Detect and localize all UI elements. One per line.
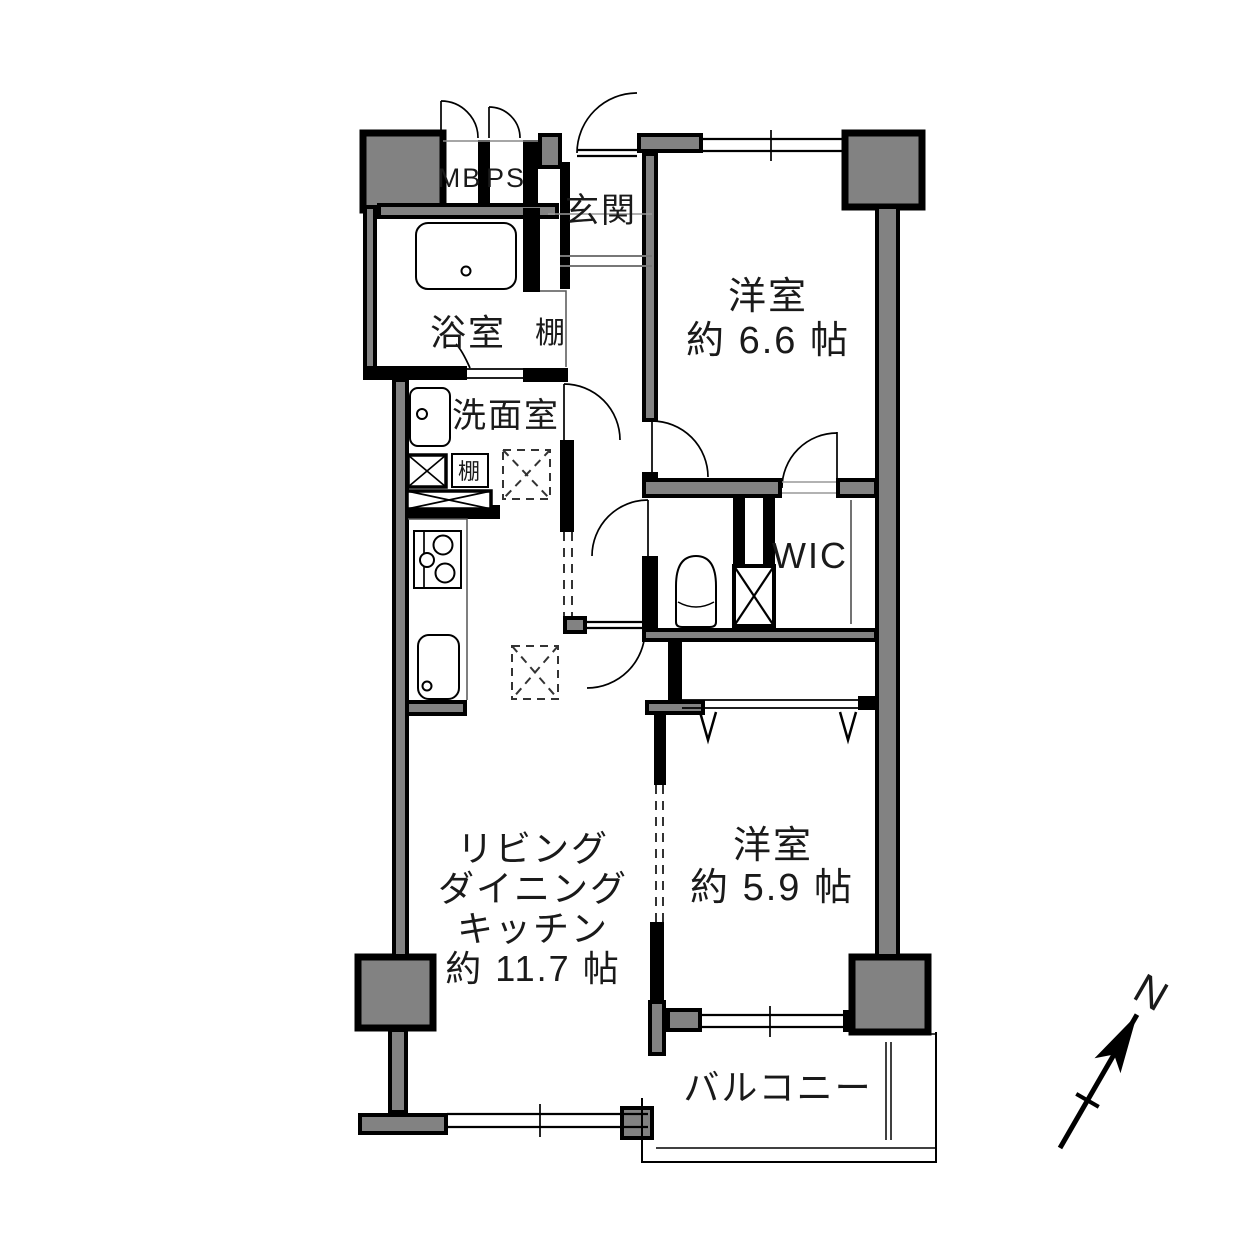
- window-bedroom2-south: [700, 1006, 843, 1037]
- counter-hatch: [407, 491, 491, 509]
- partition-ldk-bedroom2-dashed: [656, 785, 663, 922]
- pillar: [845, 133, 922, 207]
- wall-segment: [858, 696, 878, 710]
- pillar: [363, 133, 443, 210]
- label-ldk-line2: ダイニング: [438, 868, 628, 909]
- pipe-shaft-box: [734, 566, 774, 626]
- wall-segment: [843, 1010, 855, 1032]
- label-bedroom2-size: 約 5.9 帖: [690, 867, 854, 909]
- bedroom1-door: [652, 421, 708, 477]
- entrance-door: [577, 93, 637, 156]
- dashed-space-kitchen: [512, 646, 558, 699]
- wall-core: [396, 382, 405, 954]
- ps-door: [489, 107, 520, 138]
- bathtub: [416, 223, 516, 289]
- window-bedroom1-top: [700, 130, 845, 161]
- label-ldk-size: 約 11.7 帖: [445, 948, 620, 989]
- closet-sliding-doors: [682, 700, 858, 740]
- wall-core: [567, 620, 583, 630]
- wall-core: [652, 1004, 662, 1052]
- wall-core: [409, 704, 463, 712]
- wall-core: [646, 482, 778, 494]
- label-shelf-upper: 棚: [535, 317, 567, 350]
- wall-segment: [363, 366, 408, 380]
- floor-plan-page: MB PS 玄関 浴室 棚 洗面室 棚 WIC 洋室 約 6.6 帖 リビング …: [0, 0, 1252, 1252]
- stove: [414, 531, 461, 588]
- pillar: [358, 957, 433, 1028]
- label-bedroom1-size: 約 6.6 帖: [686, 320, 850, 362]
- kitchen-sink: [418, 635, 459, 699]
- pillar: [852, 957, 928, 1032]
- floor-plan: MB PS 玄関 浴室 棚 洗面室 棚 WIC 洋室 約 6.6 帖 リビング …: [0, 0, 1252, 1252]
- washbasin: [410, 388, 450, 446]
- wall-core: [641, 137, 699, 149]
- compass-n-label: N: [1126, 964, 1178, 1021]
- wall-segment: [405, 366, 467, 380]
- toilet: [676, 556, 716, 627]
- wall-core: [367, 209, 373, 376]
- label-entrance: 玄関: [565, 192, 637, 230]
- compass-north: N: [1047, 964, 1178, 1157]
- wall-segment: [523, 208, 540, 292]
- window-ldk-south: [447, 1104, 648, 1137]
- label-ldk-line1: リビング: [457, 828, 609, 869]
- label-mb: MB: [438, 163, 483, 193]
- label-ps: PS: [486, 163, 526, 193]
- wall-core: [542, 137, 558, 165]
- label-balcony: バルコニー: [683, 1067, 872, 1108]
- label-wic: WIC: [772, 535, 848, 576]
- toilet-door: [592, 500, 648, 556]
- wall-core: [646, 632, 874, 638]
- refrigerator-space: [503, 450, 550, 499]
- label-bedroom2-name: 洋室: [733, 825, 813, 867]
- compass-arrowhead: [1095, 1007, 1150, 1073]
- wall-core: [362, 1117, 444, 1131]
- mb-door: [441, 101, 478, 138]
- wic-door: [782, 432, 837, 493]
- wall-segment: [654, 715, 666, 785]
- wall-segment: [650, 922, 664, 1002]
- wall-core: [840, 482, 874, 494]
- hanging-wall-hall: [564, 532, 572, 616]
- washer-space: [408, 455, 446, 487]
- label-shelf-lower: 棚: [458, 459, 482, 484]
- wall-segment: [523, 368, 568, 382]
- wall-segment: [560, 440, 574, 532]
- wall-segment: [733, 498, 745, 568]
- ldk-door: [587, 622, 645, 688]
- label-ldk-line3: キッチン: [457, 908, 609, 949]
- washroom-door: [564, 384, 620, 440]
- label-bedroom1-name: 洋室: [728, 276, 808, 318]
- label-bathroom: 浴室: [430, 312, 506, 353]
- label-washroom: 洗面室: [452, 397, 560, 435]
- wall-core: [392, 1032, 404, 1110]
- wall-core: [670, 1012, 698, 1028]
- wall-segment: [668, 642, 682, 706]
- wall-core: [879, 209, 896, 954]
- wall-core: [646, 156, 654, 418]
